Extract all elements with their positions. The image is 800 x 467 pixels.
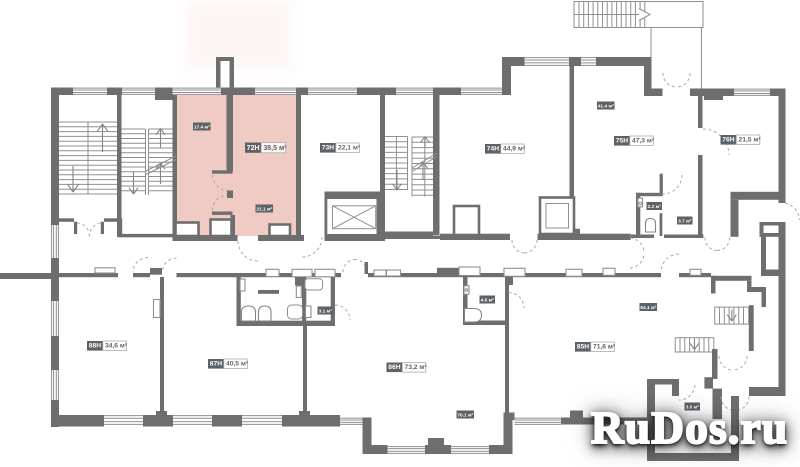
svg-text:3.7 м²: 3.7 м²	[678, 218, 692, 224]
svg-text:2.2 м²: 2.2 м²	[648, 204, 662, 210]
svg-text:75H: 75H	[616, 138, 628, 145]
svg-text:73,2 м²: 73,2 м²	[405, 364, 428, 371]
svg-text:44,9 м²: 44,9 м²	[503, 146, 526, 153]
svg-text:21.1 м²: 21.1 м²	[256, 206, 272, 212]
svg-text:3.1 м²: 3.1 м²	[319, 308, 333, 314]
svg-text:17.4 м²: 17.4 м²	[194, 124, 210, 130]
svg-text:85H: 85H	[577, 344, 589, 351]
svg-text:21,5 м²: 21,5 м²	[739, 137, 762, 144]
svg-text:38,5 м²: 38,5 м²	[263, 145, 287, 152]
svg-text:73H: 73H	[322, 145, 334, 152]
svg-text:72H: 72H	[247, 145, 260, 152]
svg-text:4.5 м²: 4.5 м²	[481, 297, 495, 303]
svg-text:47,3 м²: 47,3 м²	[632, 138, 655, 145]
svg-text:41.4 м²: 41.4 м²	[598, 103, 614, 109]
svg-text:22,1 м²: 22,1 м²	[338, 145, 361, 152]
svg-text:76H: 76H	[722, 137, 734, 144]
svg-text:40,5 м²: 40,5 м²	[226, 361, 249, 368]
svg-text:86H: 86H	[388, 364, 400, 371]
svg-text:88H: 88H	[89, 343, 101, 350]
svg-text:34,6 м²: 34,6 м²	[105, 343, 128, 350]
svg-text:71,6 м²: 71,6 м²	[593, 344, 616, 351]
svg-text:74H: 74H	[487, 146, 499, 153]
svg-text:64.1 м²: 64.1 м²	[640, 305, 656, 311]
svg-text:70.1 м²: 70.1 м²	[457, 412, 473, 418]
svg-text:87H: 87H	[210, 361, 222, 368]
